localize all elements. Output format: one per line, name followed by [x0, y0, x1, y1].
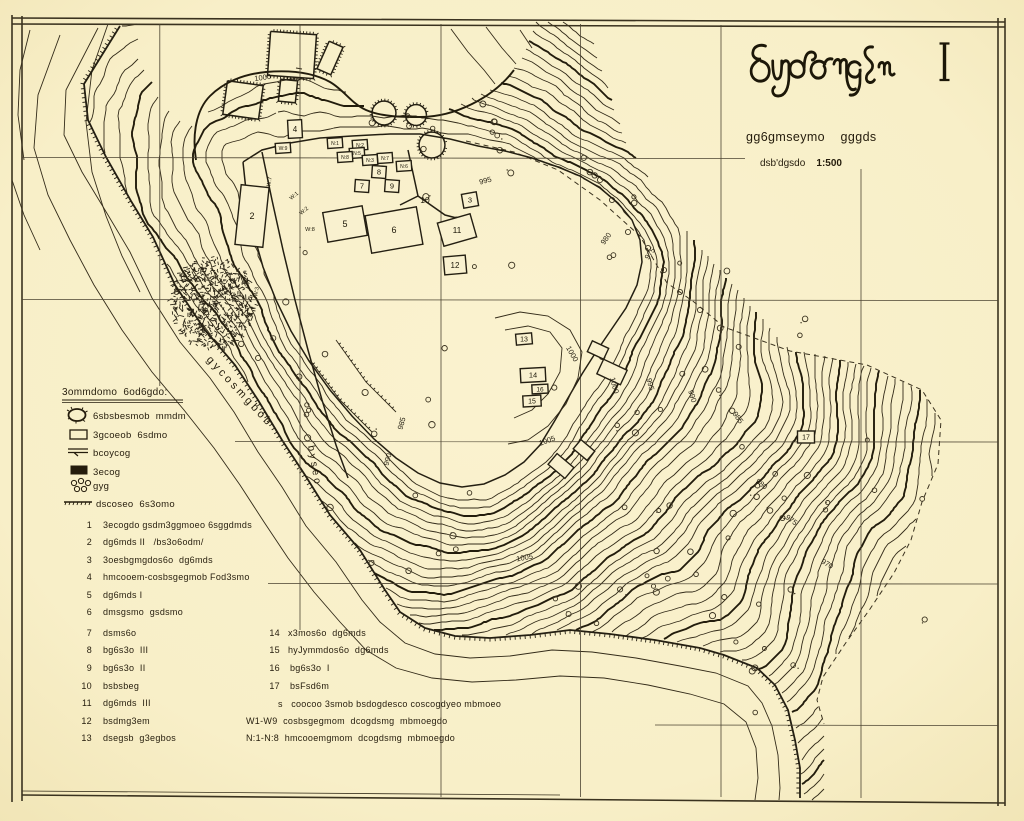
svg-text:4: 4: [87, 572, 92, 582]
svg-text:3: 3: [468, 196, 472, 205]
svg-text:1: 1: [87, 520, 92, 530]
svg-text:11: 11: [453, 225, 462, 235]
svg-text:7: 7: [360, 182, 364, 191]
svg-text:dg6mds I: dg6mds I: [103, 590, 142, 600]
svg-text:N:6: N:6: [400, 164, 408, 170]
svg-text:6: 6: [87, 607, 92, 617]
svg-text:2: 2: [87, 537, 92, 547]
svg-text:W:9: W:9: [279, 146, 288, 152]
svg-text:dsegsb g3egbos: dsegsb g3egbos: [103, 733, 176, 743]
svg-text:N:3: N:3: [366, 158, 374, 164]
svg-text:9: 9: [87, 663, 92, 673]
svg-text:W1-W9 cosbsgegmom dcogdsmg: W1-W9 cosbsgegmom dcogdsmg mbmoegdo: [246, 716, 447, 726]
svg-text:5: 5: [87, 590, 92, 600]
svg-text:x3mos6o dg6mds: x3mos6o dg6mds: [288, 628, 366, 638]
svg-text:3ecog: 3ecog: [93, 467, 120, 478]
svg-text:15: 15: [528, 399, 536, 406]
svg-text:dmsgsmo gsdsmo: dmsgsmo gsdsmo: [103, 607, 183, 617]
svg-text:10: 10: [81, 681, 92, 691]
svg-text:16: 16: [269, 663, 280, 673]
svg-text:N:1-N:8 hmcooemgmom dcogdsmg: N:1-N:8 hmcooemgmom dcogdsmg mbmoegdo: [246, 733, 455, 743]
svg-text:W:8: W:8: [305, 227, 315, 233]
svg-text:bsFsd6m: bsFsd6m: [290, 681, 329, 691]
svg-text:12: 12: [451, 261, 460, 270]
svg-text:dscoseo 6s3omo: dscoseo 6s3omo: [96, 499, 175, 510]
svg-text:gg6gmseymo gggds: gg6gmseymo gggds: [746, 130, 877, 144]
svg-text:3: 3: [87, 555, 92, 565]
svg-text:dg6mds II /bs3o6odm/: dg6mds II /bs3o6odm/: [103, 537, 204, 547]
svg-text:13: 13: [520, 337, 528, 344]
svg-text:hmcooem-cosbsgegmob Fod3smo: hmcooem-cosbsgegmob Fod3smo: [103, 572, 250, 582]
svg-text:s coocoo 3smob bsdogdesco co: s coocoo 3smob bsdogdesco coscogdyeo mbm…: [278, 699, 501, 709]
svg-text:6sbsbesmob mmdm: 6sbsbesmob mmdm: [93, 411, 186, 422]
svg-text:bsdmg3em: bsdmg3em: [103, 716, 150, 726]
svg-text:7: 7: [87, 628, 92, 638]
svg-text:14: 14: [269, 628, 280, 638]
svg-text:17: 17: [269, 681, 280, 691]
svg-text:bg6s3o III: bg6s3o III: [103, 645, 148, 655]
svg-text:9: 9: [390, 182, 394, 191]
svg-text:bg6s3o I: bg6s3o I: [290, 663, 330, 673]
svg-text:N:5: N:5: [353, 151, 361, 157]
svg-text:dg6mds III: dg6mds III: [103, 698, 151, 708]
svg-text:gyg: gyg: [93, 481, 109, 492]
svg-text:3gcoeob 6sdmo: 3gcoeob 6sdmo: [93, 430, 167, 441]
svg-text:N:2: N:2: [356, 143, 364, 149]
svg-text:11: 11: [82, 698, 92, 708]
svg-text:dsms6o: dsms6o: [103, 628, 136, 638]
svg-text:17: 17: [802, 435, 810, 442]
svg-text:N:1: N:1: [331, 141, 339, 147]
svg-text:2: 2: [249, 211, 254, 221]
svg-text:bg6s3o II: bg6s3o II: [103, 663, 146, 673]
svg-text:10: 10: [420, 195, 430, 205]
svg-text:8: 8: [87, 645, 92, 655]
svg-text:3ecogdo gsdm3ggmoeo 6sggdmds: 3ecogdo gsdm3ggmoeo 6sggdmds: [103, 520, 252, 530]
svg-text:13: 13: [81, 733, 92, 743]
svg-text:bcoycog: bcoycog: [93, 448, 130, 459]
svg-text:4: 4: [293, 125, 298, 134]
svg-text:14: 14: [529, 371, 537, 380]
svg-text:5: 5: [342, 219, 347, 229]
svg-text:8: 8: [377, 168, 381, 177]
svg-text:16: 16: [536, 386, 544, 393]
svg-text:3ommdomo 6od6gdo:: 3ommdomo 6od6gdo:: [62, 387, 167, 398]
svg-text:dsb'dgsdo 1:500: dsb'dgsdo 1:500: [760, 158, 842, 169]
svg-text:3oesbgmgdos6o dg6mds: 3oesbgmgdos6o dg6mds: [103, 555, 213, 565]
svg-text:12: 12: [81, 716, 92, 726]
svg-text:15: 15: [269, 645, 280, 655]
svg-text:6: 6: [391, 225, 396, 235]
svg-text:N:7: N:7: [381, 156, 389, 162]
svg-text:hyJymmdos6o dg6mds: hyJymmdos6o dg6mds: [288, 645, 389, 655]
svg-text:bsbsbeg: bsbsbeg: [103, 681, 139, 691]
svg-text:N:8: N:8: [341, 155, 349, 161]
